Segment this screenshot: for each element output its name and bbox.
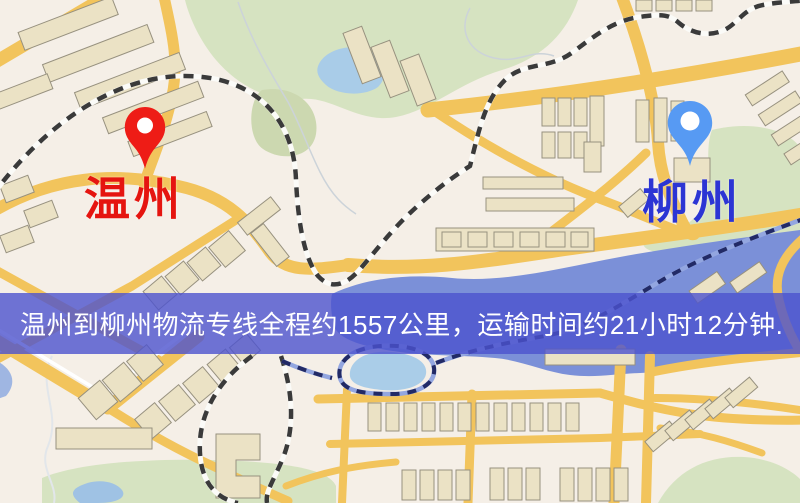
origin-pin-icon[interactable] bbox=[124, 106, 166, 170]
route-info-text: 温州到柳州物流专线全程约1557公里，运输时间约21小时12分钟. bbox=[20, 305, 783, 342]
route-info-banner: 温州到柳州物流专线全程约1557公里，运输时间约21小时12分钟. bbox=[0, 293, 800, 354]
map-view: 温州 柳州 温州到柳州物流专线全程约1557公里，运输时间约21小时12分钟. bbox=[0, 0, 800, 503]
origin-city-label: 温州 bbox=[84, 177, 184, 223]
destination-pin-icon[interactable] bbox=[667, 100, 713, 170]
destination-city-label: 柳州 bbox=[642, 180, 742, 226]
map-canvas bbox=[0, 0, 800, 503]
